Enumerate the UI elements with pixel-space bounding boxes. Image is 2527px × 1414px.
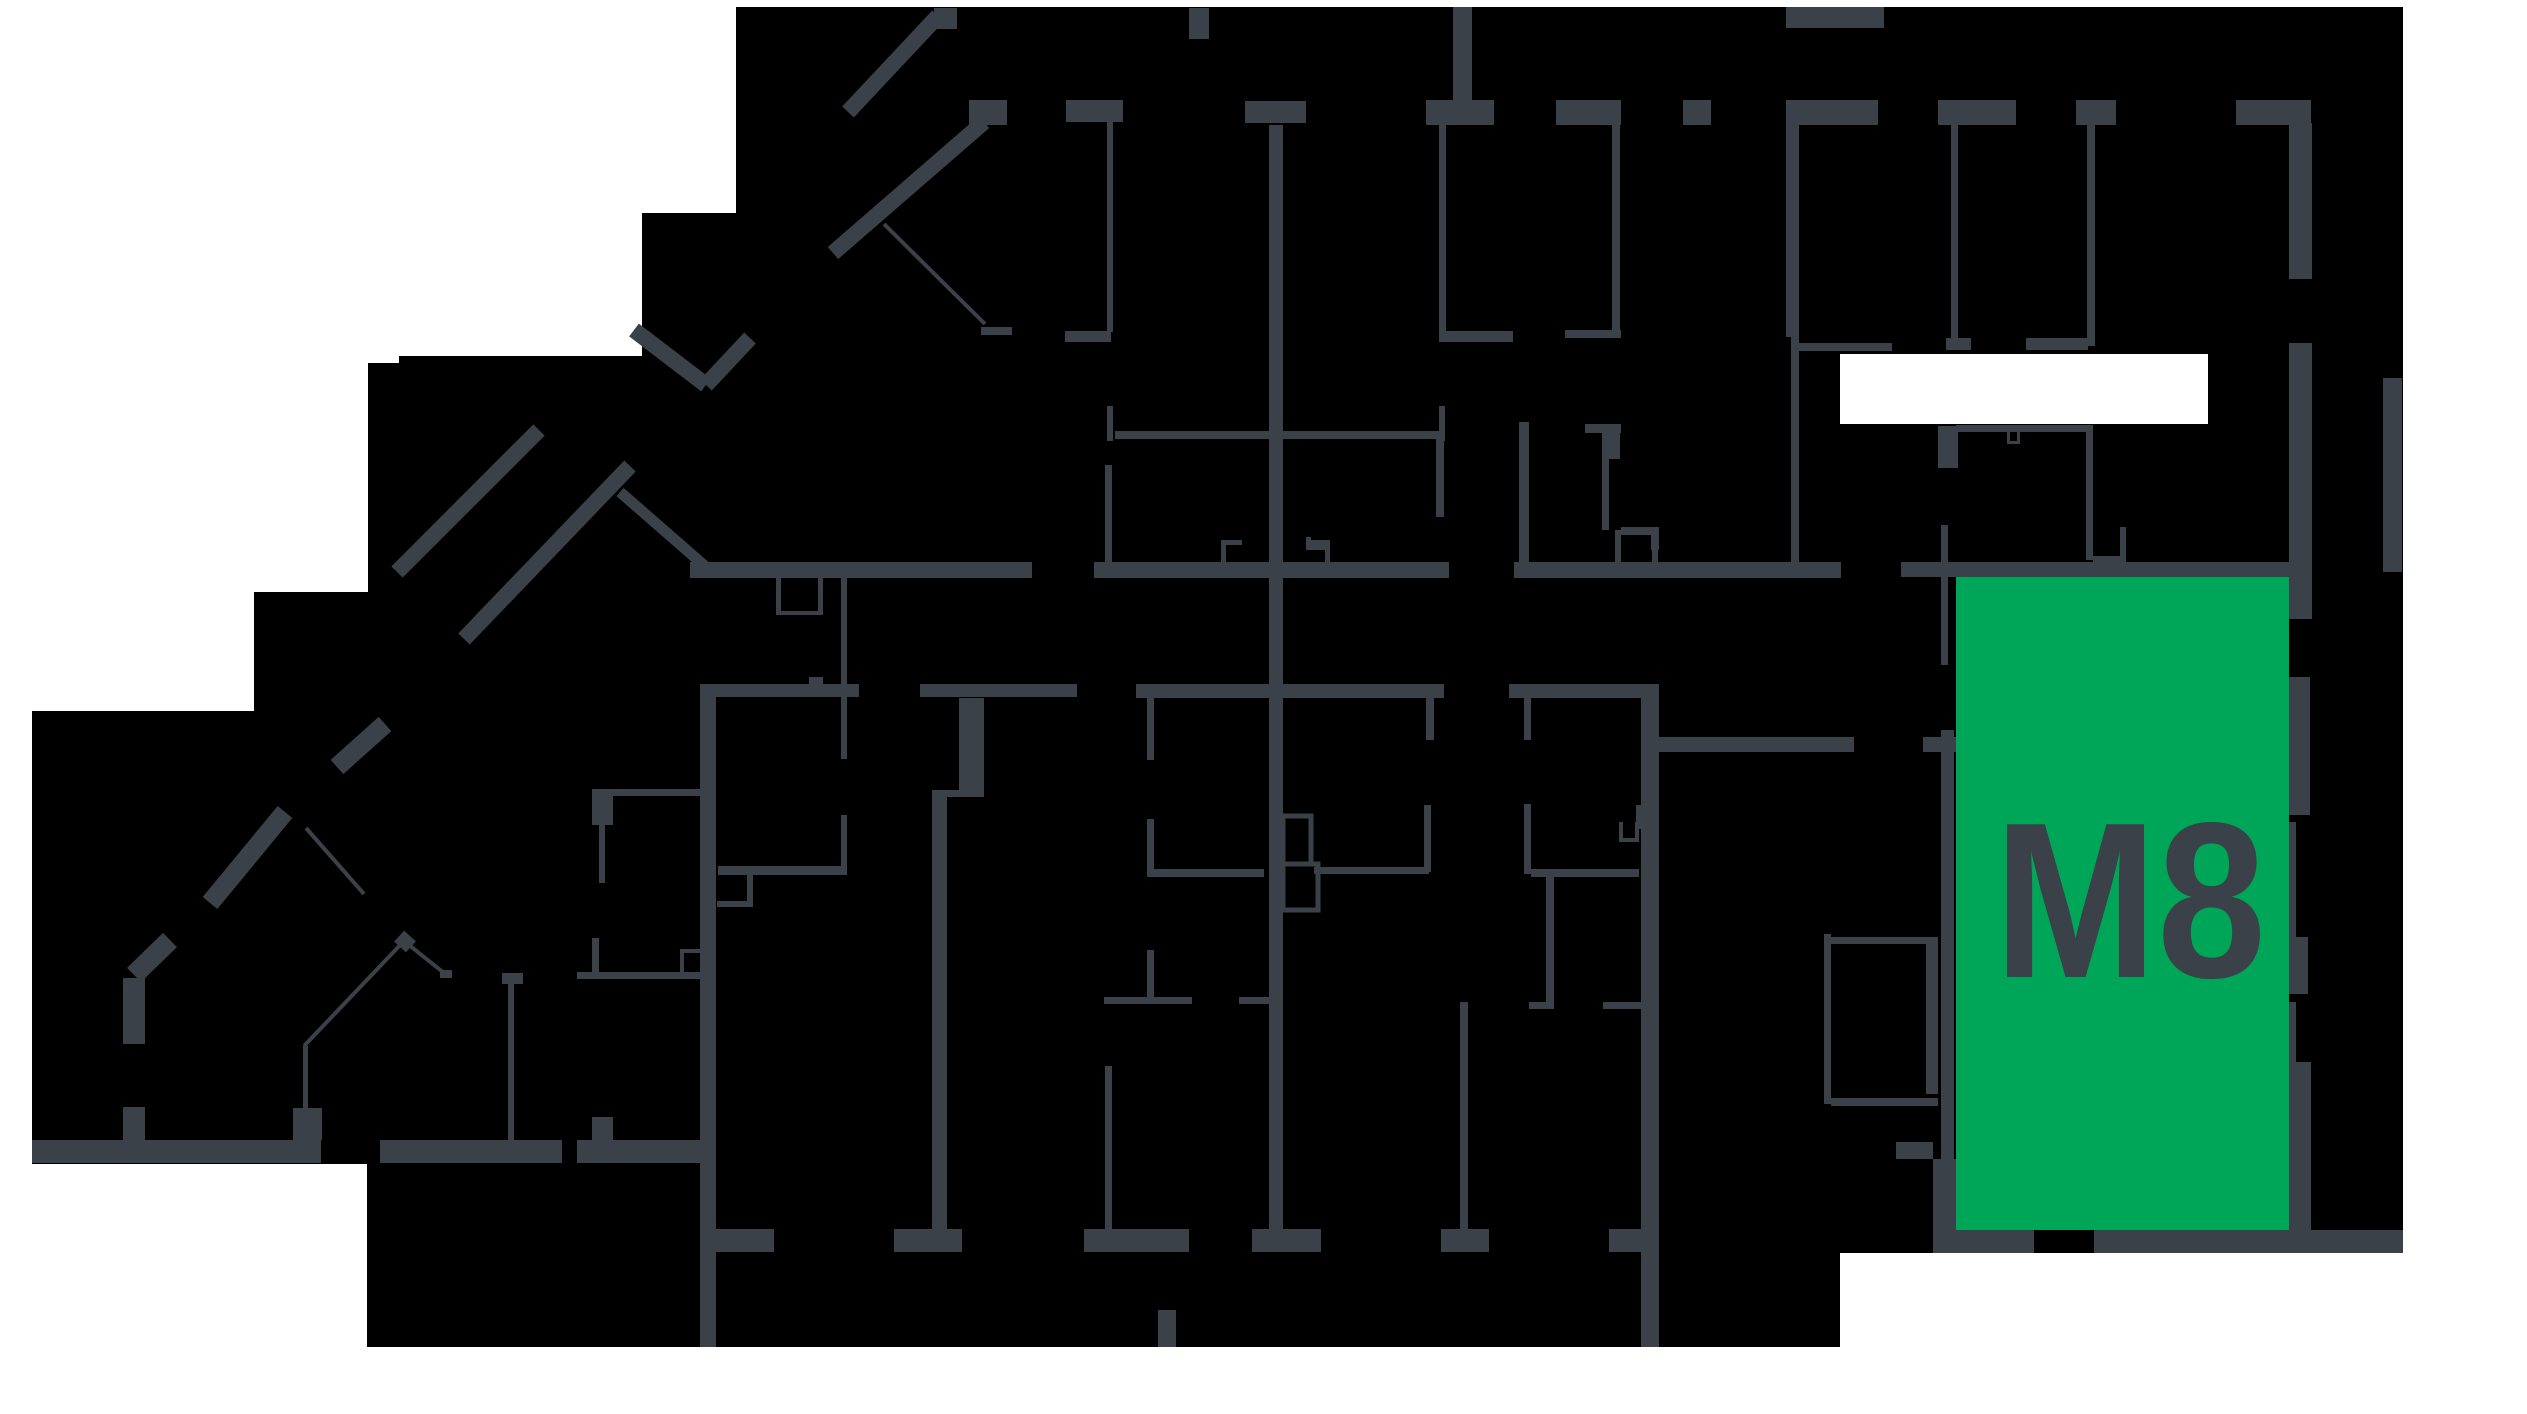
svg-text:M8: M8 [1994,777,2266,1025]
